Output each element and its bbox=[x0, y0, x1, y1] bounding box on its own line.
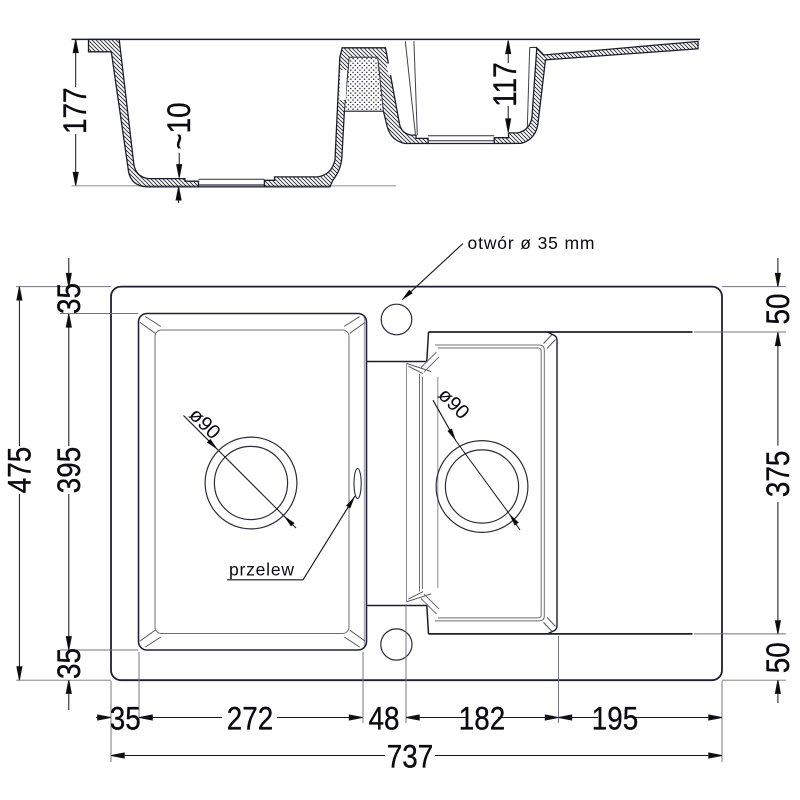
svg-text:ø90: ø90 bbox=[433, 384, 473, 424]
svg-text:50: 50 bbox=[761, 294, 796, 325]
svg-text:ø90: ø90 bbox=[184, 404, 224, 444]
svg-text:35: 35 bbox=[52, 283, 87, 314]
svg-text:117: 117 bbox=[488, 62, 523, 106]
svg-text:272: 272 bbox=[227, 702, 273, 737]
svg-text:otwór ø 35 mm: otwór ø 35 mm bbox=[468, 233, 595, 253]
svg-text:przelew: przelew bbox=[229, 560, 294, 580]
svg-text:737: 737 bbox=[387, 740, 433, 775]
svg-text:35: 35 bbox=[52, 648, 87, 679]
svg-text:50: 50 bbox=[761, 642, 796, 673]
svg-text:195: 195 bbox=[592, 702, 638, 737]
svg-text:375: 375 bbox=[761, 451, 796, 497]
svg-text:182: 182 bbox=[459, 702, 505, 737]
svg-text:35: 35 bbox=[110, 702, 141, 737]
svg-text:~10: ~10 bbox=[162, 102, 197, 149]
svg-text:475: 475 bbox=[3, 447, 38, 493]
svg-text:48: 48 bbox=[369, 702, 400, 737]
svg-text:395: 395 bbox=[52, 447, 87, 493]
svg-text:177: 177 bbox=[58, 88, 93, 134]
